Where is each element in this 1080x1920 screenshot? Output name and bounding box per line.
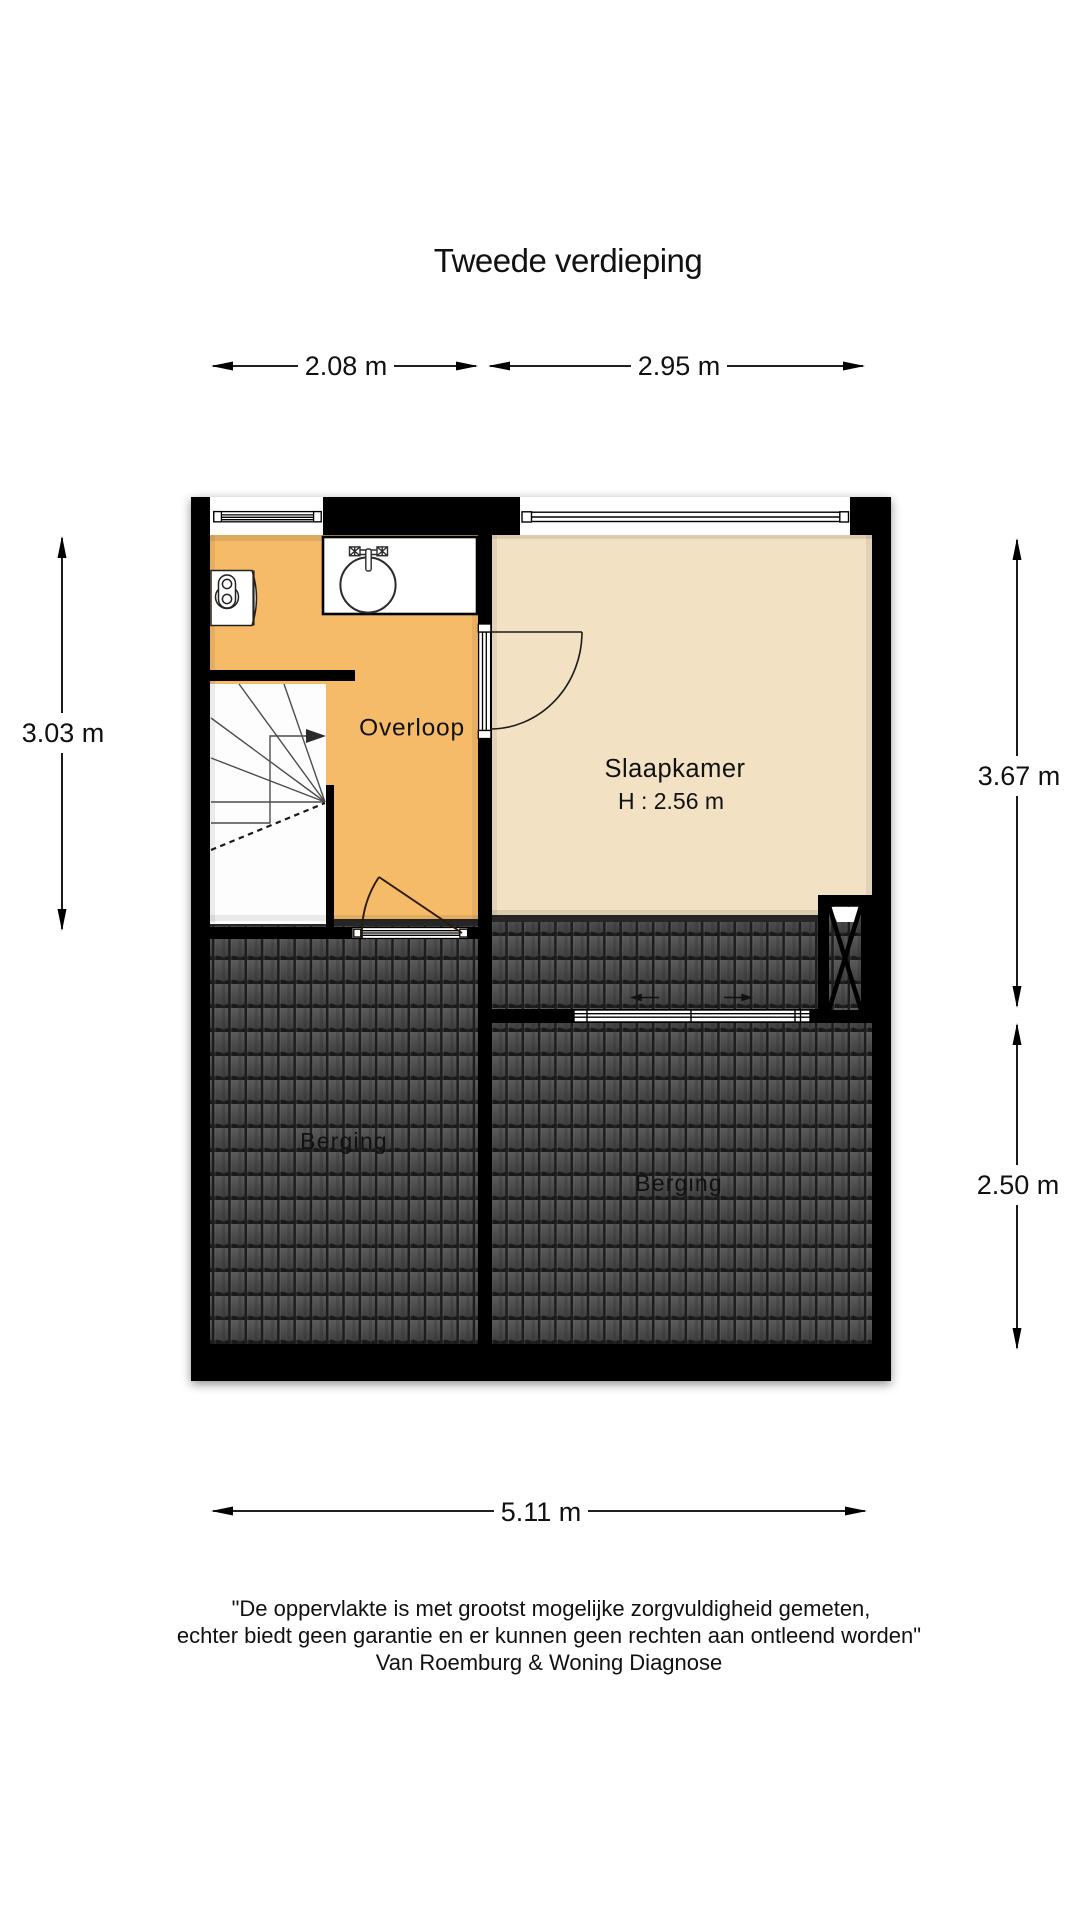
svg-text:Tweede verdieping: Tweede verdieping bbox=[434, 242, 703, 279]
svg-text:2.95 m: 2.95 m bbox=[638, 351, 721, 381]
svg-text:3.03 m: 3.03 m bbox=[22, 718, 105, 748]
svg-text:Overloop: Overloop bbox=[359, 715, 465, 742]
svg-text:echter biedt geen garantie en: echter biedt geen garantie en er kunnen … bbox=[177, 1623, 921, 1648]
svg-text:Berging: Berging bbox=[300, 1128, 388, 1154]
svg-text:Slaapkamer: Slaapkamer bbox=[604, 755, 745, 783]
svg-text:5.11 m: 5.11 m bbox=[501, 1497, 582, 1527]
svg-text:Berging: Berging bbox=[635, 1170, 723, 1196]
svg-text:3.67 m: 3.67 m bbox=[978, 761, 1061, 791]
svg-text:H : 2.56 m: H : 2.56 m bbox=[618, 788, 724, 814]
svg-text:2.50 m: 2.50 m bbox=[977, 1170, 1060, 1200]
svg-text:2.08 m: 2.08 m bbox=[305, 351, 388, 381]
svg-text:Van Roemburg & Woning Diagnose: Van Roemburg & Woning Diagnose bbox=[376, 1650, 723, 1675]
svg-text:"De oppervlakte is met grootst: "De oppervlakte is met grootst mogelijke… bbox=[232, 1596, 871, 1621]
